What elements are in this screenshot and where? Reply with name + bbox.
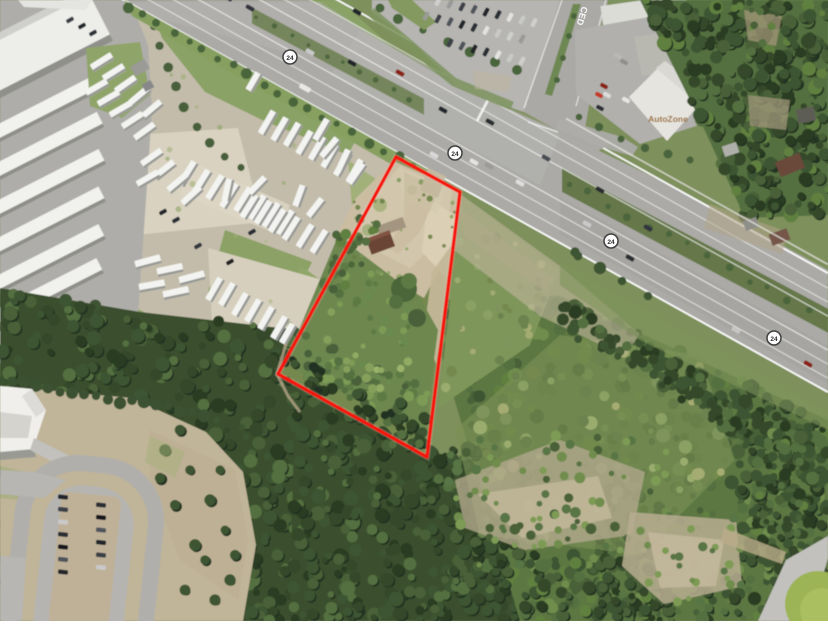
svg-text:AutoZone: AutoZone — [648, 114, 688, 124]
svg-text:24: 24 — [770, 336, 778, 343]
svg-text:24: 24 — [286, 55, 294, 62]
svg-text:24: 24 — [451, 151, 459, 158]
svg-text:24: 24 — [607, 239, 615, 246]
